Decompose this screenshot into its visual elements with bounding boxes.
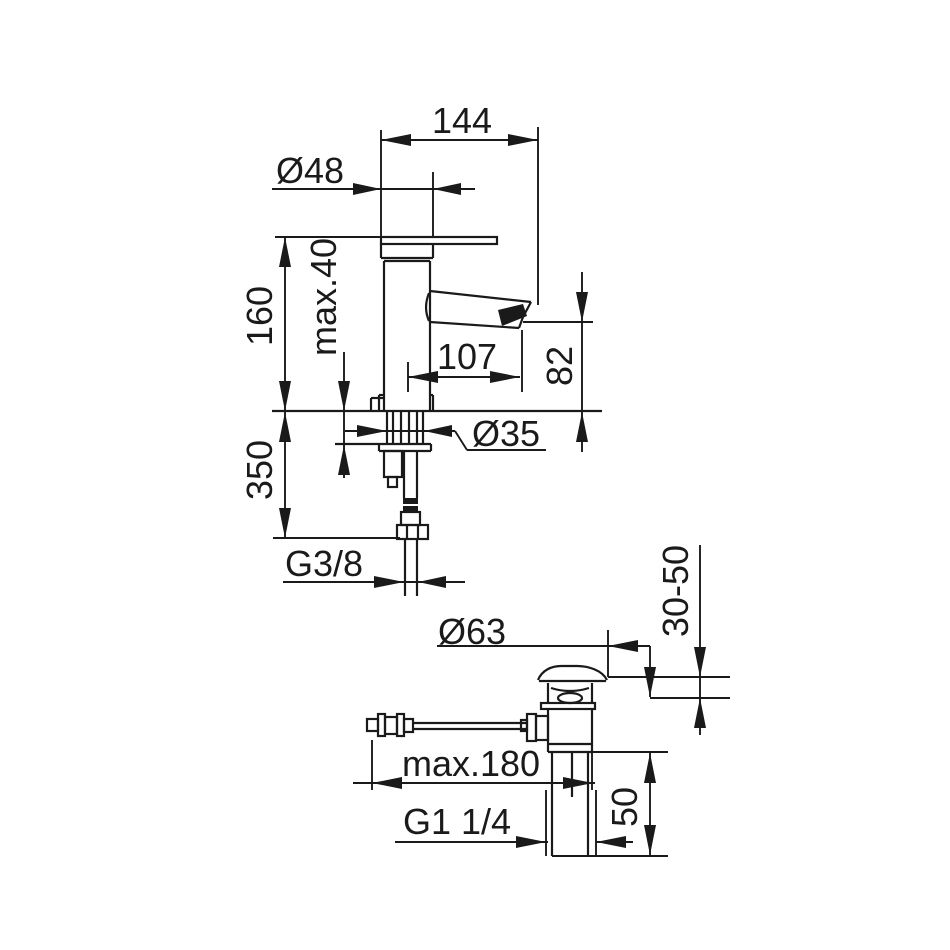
dim-label-350: 350 <box>239 440 280 500</box>
dim-label-30-50: 30-50 <box>655 545 696 637</box>
dim-label-g114: G1 1/4 <box>403 801 511 842</box>
technical-drawing-page: 144 Ø48 max.40 160 107 82 Ø35 350 G3/8 Ø… <box>0 0 950 950</box>
aerator-outlet <box>498 304 527 326</box>
dim-label-107: 107 <box>437 336 497 377</box>
dim-label-144: 144 <box>432 100 492 141</box>
dim-label-d48: Ø48 <box>276 150 344 191</box>
faucet-outline <box>371 237 531 411</box>
dim-label-160: 160 <box>239 286 280 346</box>
faucet-dimension-drawing: 144 Ø48 max.40 160 107 82 Ø35 350 G3/8 Ø… <box>0 0 950 950</box>
dim-label-d35: Ø35 <box>472 413 540 454</box>
dim-label-82: 82 <box>539 346 580 386</box>
dimension-labels: 144 Ø48 max.40 160 107 82 Ø35 350 G3/8 Ø… <box>239 100 696 842</box>
dim-label-50: 50 <box>604 787 645 827</box>
dim-label-g38: G3/8 <box>285 543 363 584</box>
dim-label-max180: max.180 <box>402 743 540 784</box>
dim-label-max40: max.40 <box>303 238 344 356</box>
dim-label-d63: Ø63 <box>438 611 506 652</box>
